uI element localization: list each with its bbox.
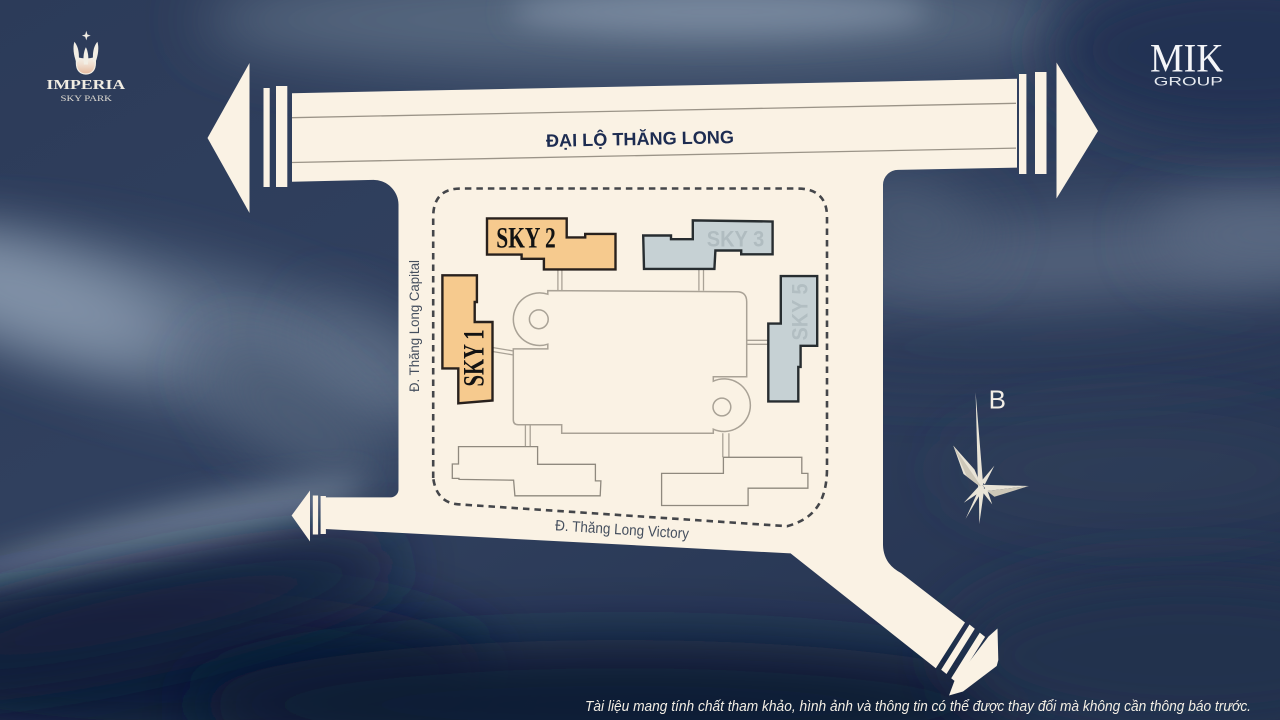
svg-text:SKY 2: SKY 2 (496, 222, 556, 255)
svg-text:Đ. Thăng Long Capital: Đ. Thăng Long Capital (406, 260, 422, 392)
svg-text:SKY PARK: SKY PARK (61, 93, 113, 103)
svg-text:Tài liệu mang tính chất tham k: Tài liệu mang tính chất tham khảo, hình … (585, 698, 1251, 715)
svg-text:SKY 1: SKY 1 (458, 330, 491, 387)
svg-text:B: B (989, 385, 1006, 415)
svg-text:ĐẠI LỘ THĂNG LONG: ĐẠI LỘ THĂNG LONG (546, 126, 734, 151)
svg-text:SKY 5: SKY 5 (788, 284, 813, 341)
svg-text:SKY 3: SKY 3 (707, 226, 765, 251)
svg-text:IMPERIA: IMPERIA (46, 78, 126, 93)
svg-text:GROUP: GROUP (1154, 74, 1223, 88)
